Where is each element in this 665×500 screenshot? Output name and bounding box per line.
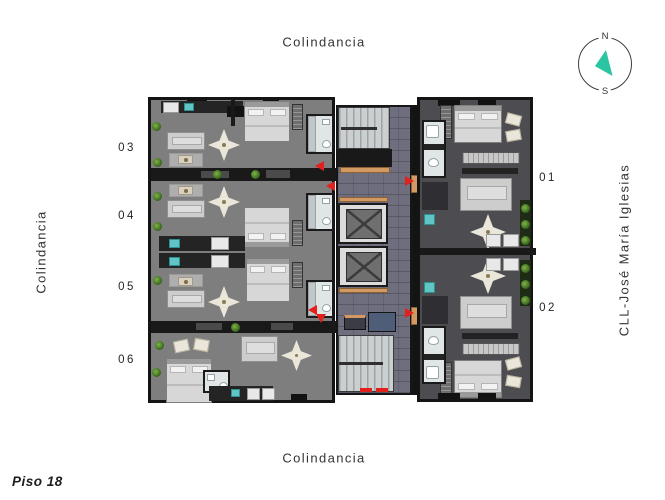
unit04-appliance	[211, 237, 229, 250]
unit01-entry-nook	[422, 182, 448, 210]
stair-rail	[339, 362, 383, 365]
unit02-tv-console	[462, 333, 518, 339]
unit03-coffee-table	[178, 155, 193, 164]
unit02-cushion	[505, 356, 522, 371]
unit04-sink	[169, 239, 180, 248]
bath-counter	[424, 354, 444, 360]
plant	[153, 276, 162, 285]
unit03-fridge	[163, 102, 179, 113]
toilet	[322, 140, 331, 148]
wood-threshold	[340, 167, 390, 173]
plant	[521, 220, 530, 229]
unit04-dining-table	[208, 186, 240, 218]
street-label-right: CLL-José María Iglesias	[617, 164, 632, 336]
unit01-sofa	[460, 178, 512, 211]
wall-pier	[478, 393, 496, 399]
unit-label-04: 04	[118, 210, 136, 222]
left-apartment-block	[148, 97, 335, 403]
unit05-coffee-table	[178, 277, 193, 286]
unit03-wardrobe	[292, 104, 303, 130]
interior-wall	[231, 100, 235, 126]
washer	[426, 125, 439, 138]
toilet	[322, 217, 331, 225]
unit-divider-band	[151, 168, 338, 181]
unit01-cushion	[505, 112, 522, 127]
entry-arrow-icon	[405, 308, 414, 318]
floor-number-label: Piso 18	[12, 474, 63, 489]
compass-rose: N S	[578, 37, 632, 91]
unit06-armchair	[173, 339, 190, 354]
unit01-appliance	[503, 234, 519, 247]
duct-shaft	[368, 312, 396, 332]
toilet	[322, 304, 331, 312]
plant	[152, 122, 161, 131]
unit02-cushion	[505, 375, 522, 388]
unit04-bathroom	[306, 193, 334, 231]
unit-label-05: 05	[118, 281, 136, 293]
unit-divider-band	[151, 321, 338, 333]
unit-label-02: 02	[539, 302, 557, 314]
unit02-appliance	[486, 258, 501, 271]
unit-label-01: 01	[539, 172, 557, 184]
washer	[426, 366, 439, 379]
plant	[153, 192, 162, 201]
unit02-entry-nook	[422, 296, 448, 324]
unit06-armchair	[193, 338, 210, 352]
unit04-sofa	[167, 200, 205, 218]
unit05-wardrobe	[292, 262, 303, 288]
unit03-bathroom	[306, 114, 334, 154]
plant	[152, 368, 161, 377]
unit02-fixture	[424, 282, 435, 293]
bath-counter	[424, 144, 444, 150]
elevator-cab-icon	[346, 209, 382, 239]
divider-segment	[271, 323, 293, 330]
elevator-cab-icon	[346, 252, 382, 282]
bathroom-sink	[207, 374, 215, 381]
elevator-2	[338, 246, 388, 287]
boundary-label-bottom: Colindancia	[282, 451, 365, 466]
wall-pier	[291, 394, 307, 400]
compass-south-label: S	[599, 86, 611, 97]
shower	[308, 116, 316, 152]
floor-plan	[148, 95, 533, 405]
plant	[521, 280, 530, 289]
unit06-dining-table	[281, 340, 312, 371]
unit-label-06: 06	[118, 354, 136, 366]
unit05-bed	[246, 258, 290, 302]
plant	[153, 158, 162, 167]
wood-threshold	[339, 288, 388, 293]
toilet	[428, 158, 439, 167]
unit06-appliance	[247, 388, 260, 400]
unit01-fixture	[424, 214, 435, 225]
unit03-dining-table	[208, 129, 240, 161]
plant	[251, 170, 260, 179]
unit04-bed	[244, 207, 290, 248]
entry-arrow-icon	[316, 314, 326, 323]
wall-pier	[438, 393, 460, 399]
plant	[231, 323, 240, 332]
unit05-sink	[169, 257, 180, 266]
boundary-label-top: Colindancia	[282, 35, 365, 50]
unit03-sofa	[167, 132, 205, 150]
plant	[213, 170, 222, 179]
unit01-bed	[454, 105, 502, 143]
unit02-appliance	[503, 258, 519, 271]
unit06-appliance	[262, 388, 275, 400]
plant	[521, 236, 530, 245]
unit05-sofa	[167, 290, 205, 308]
unit01-appliance	[486, 234, 501, 247]
bathroom-sink	[322, 119, 330, 125]
unit01-dresser	[462, 152, 520, 164]
service-shaft	[344, 315, 366, 330]
entry-arrow-icon	[315, 161, 324, 171]
right-apartment-block	[417, 97, 533, 402]
elevator-1	[338, 203, 388, 244]
bathroom-sink	[322, 285, 330, 291]
compass-needle-icon	[595, 50, 615, 76]
unit04-coffee-table	[178, 186, 193, 195]
staircase-bottom	[338, 335, 394, 392]
exit-marking	[360, 388, 372, 392]
floor-plan-page: Colindancia Colindancia Colindancia CLL-…	[0, 0, 665, 500]
unit06-sofa	[241, 336, 278, 362]
wood-threshold	[339, 197, 388, 202]
core-wall	[338, 149, 392, 167]
shower	[308, 195, 316, 229]
unit05-appliance	[211, 255, 229, 268]
circulation-core	[336, 105, 412, 395]
plant	[521, 296, 530, 305]
stair-rail	[341, 127, 377, 130]
plant	[521, 204, 530, 213]
plant	[153, 222, 162, 231]
unit06-sink	[231, 389, 240, 397]
unit-divider-band	[420, 248, 536, 255]
staircase-top	[338, 107, 390, 149]
unit02-dresser	[462, 343, 520, 355]
boundary-label-left: Colindancia	[34, 210, 49, 293]
compass-north-label: N	[599, 31, 612, 42]
unit02-sofa	[460, 296, 512, 329]
unit03-bed	[244, 101, 290, 142]
plant	[521, 264, 530, 273]
unit-label-03: 03	[118, 142, 136, 154]
plant	[155, 341, 164, 350]
entry-arrow-icon	[405, 176, 414, 186]
unit03-sink	[184, 103, 194, 111]
unit02-bathroom	[422, 326, 446, 384]
toilet	[428, 336, 439, 345]
exit-marking	[376, 388, 388, 392]
entry-arrow-icon	[326, 181, 335, 191]
unit03-closet	[227, 106, 245, 117]
bathroom-sink	[322, 198, 330, 204]
unit04-wardrobe	[292, 220, 303, 246]
divider-segment	[266, 170, 290, 178]
unit05-dining-table	[208, 286, 240, 318]
divider-segment	[196, 323, 222, 330]
unit01-cushion	[505, 129, 522, 142]
unit01-tv-console	[462, 168, 518, 174]
unit01-bathroom	[422, 120, 446, 178]
